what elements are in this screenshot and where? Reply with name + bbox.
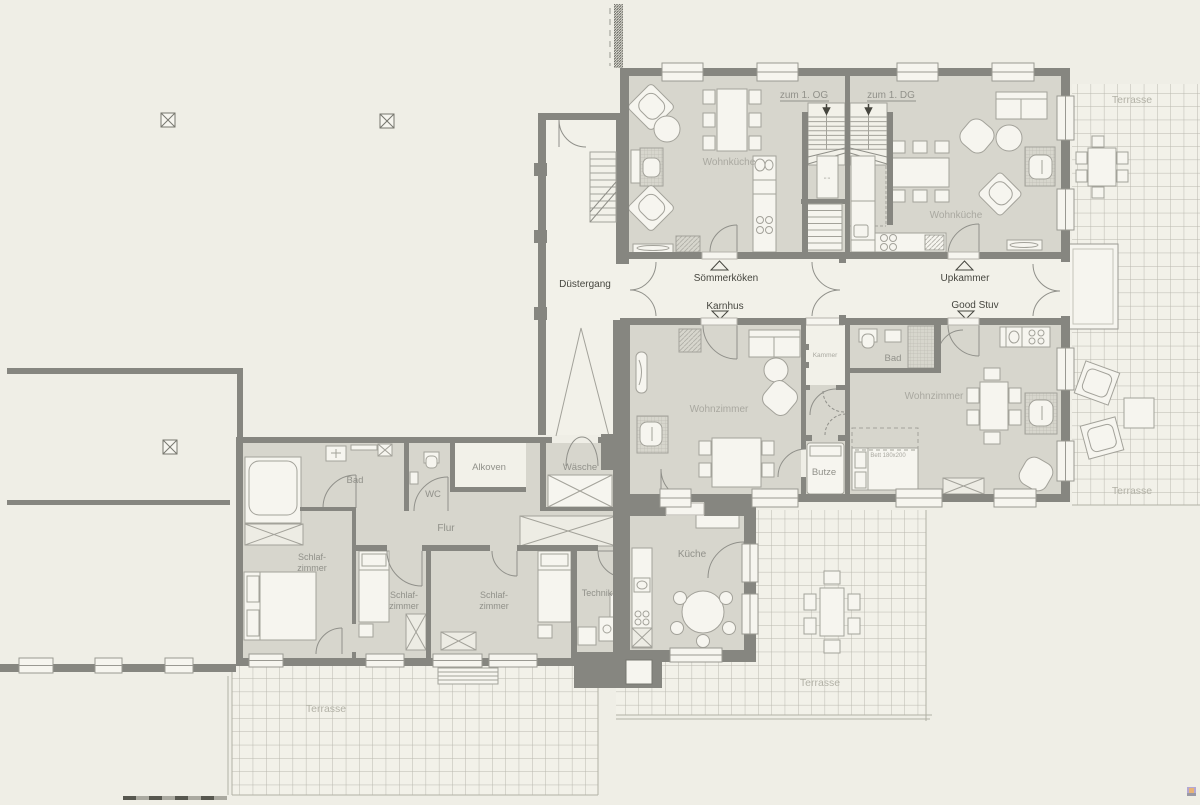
svg-text:zum 1. DG: zum 1. DG [867,90,915,101]
svg-text:Upkammer: Upkammer [941,273,991,284]
svg-text:Terrasse: Terrasse [306,703,346,715]
svg-text:" ": " " [824,178,829,184]
svg-text:Terrasse: Terrasse [1112,94,1152,106]
svg-text:zimmer: zimmer [389,601,419,611]
svg-text:zum 1. OG: zum 1. OG [780,90,829,101]
svg-text:Wohnzimmer: Wohnzimmer [690,404,749,415]
svg-text:Good Stuv: Good Stuv [951,300,998,311]
svg-text:Wohnküche: Wohnküche [930,210,983,221]
svg-text:Schlaf-: Schlaf- [390,590,418,600]
svg-text:Flur: Flur [437,523,455,534]
svg-text:Düstergang: Düstergang [559,279,611,290]
svg-text:Terrasse: Terrasse [1112,485,1152,497]
svg-text:zimmer: zimmer [479,601,509,611]
svg-text:Bad: Bad [885,353,902,364]
svg-text:Karnhus: Karnhus [706,301,743,312]
svg-text:Wohnzimmer: Wohnzimmer [905,391,964,402]
svg-text:Butze: Butze [812,467,836,478]
svg-text:Bad: Bad [347,475,364,486]
svg-text:WC: WC [425,489,441,500]
svg-text:Schlaf-: Schlaf- [298,552,326,562]
svg-text:Technik: Technik [582,588,613,598]
svg-text:Küche: Küche [678,549,707,560]
svg-text:Alkoven: Alkoven [472,462,506,473]
svg-text:Wohnküche: Wohnküche [703,157,756,168]
svg-text:Sömmerköken: Sömmerköken [694,273,758,284]
svg-text:Bett 180x200: Bett 180x200 [870,453,906,459]
svg-text:Kammer: Kammer [813,352,838,359]
svg-text:Wäsche: Wäsche [563,462,597,473]
svg-text:Schlaf-: Schlaf- [480,590,508,600]
svg-text:Terrasse: Terrasse [800,677,840,689]
